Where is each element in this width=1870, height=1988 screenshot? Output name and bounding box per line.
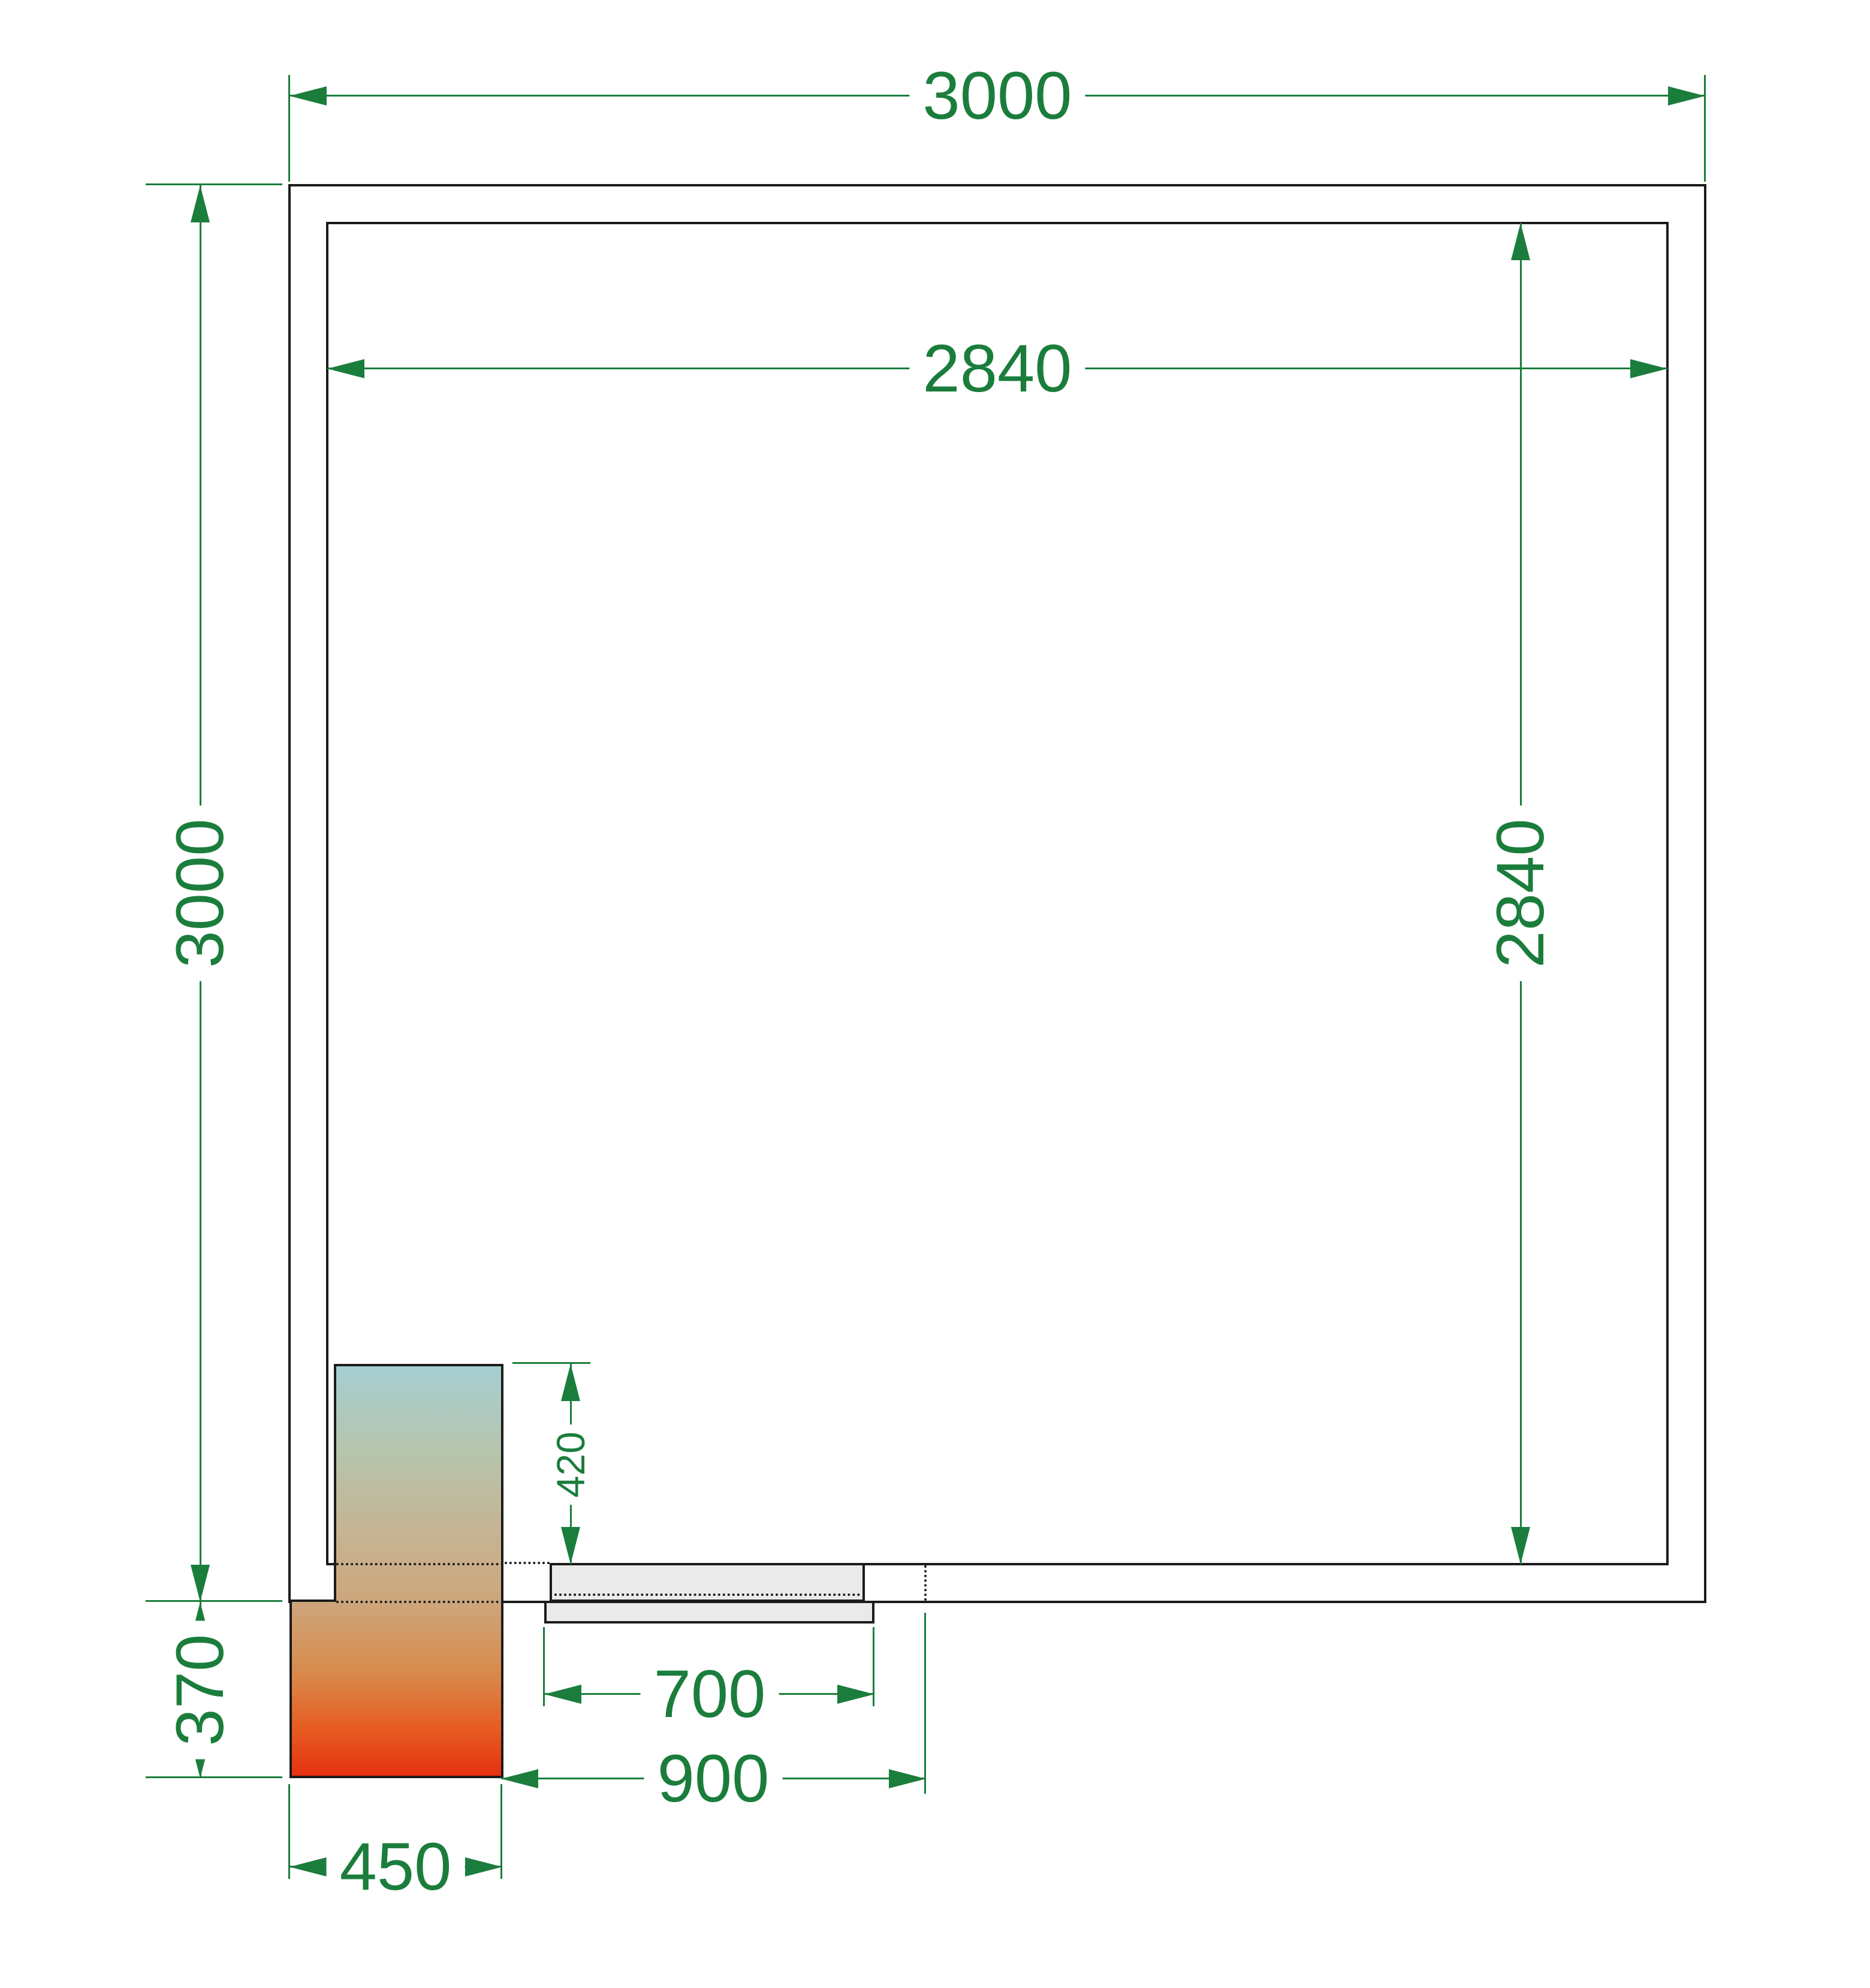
dim-900-label: 900 bbox=[644, 1742, 783, 1816]
wall-inner-top bbox=[326, 222, 1669, 224]
dim-420-label: 420 bbox=[548, 1424, 593, 1505]
wall-outer-top bbox=[289, 184, 1705, 186]
dim-3000-top-label: 3000 bbox=[909, 59, 1085, 133]
hidden-edge-opening-left bbox=[505, 1562, 550, 1564]
arrow-right-icon bbox=[465, 1857, 502, 1876]
dim-2840-top-label: 2840 bbox=[909, 332, 1085, 406]
arrow-left-icon bbox=[501, 1769, 538, 1788]
cooling-unit-inside-part bbox=[334, 1364, 503, 1602]
hidden-edge-inner-face-through-unit bbox=[336, 1563, 503, 1565]
wall-inner-left bbox=[326, 222, 328, 1565]
dim-3000-left-label: 3000 bbox=[163, 805, 237, 981]
cooling-unit-outside-part bbox=[289, 1602, 503, 1778]
arrow-up-icon bbox=[561, 1364, 580, 1401]
hidden-edge-outer-face-through-unit bbox=[336, 1601, 503, 1603]
arrow-right-icon bbox=[889, 1769, 926, 1788]
door-outer-lip bbox=[544, 1601, 874, 1623]
dim-370-label: 370 bbox=[163, 1621, 237, 1760]
arrow-up-icon bbox=[1511, 223, 1530, 260]
dim-3000-left-ext-bottom bbox=[146, 1600, 282, 1602]
door-leaf bbox=[550, 1563, 865, 1602]
arrow-up-icon bbox=[191, 185, 210, 222]
wall-inner-bottom-right bbox=[865, 1563, 1668, 1565]
arrow-down-icon bbox=[561, 1527, 580, 1564]
dim-370-ext-bottom bbox=[146, 1776, 282, 1778]
dim-450-label: 450 bbox=[327, 1830, 465, 1904]
arrow-down-icon bbox=[1511, 1527, 1530, 1564]
wall-outer-left bbox=[288, 184, 291, 1603]
arrow-down-icon bbox=[191, 1565, 210, 1602]
arrow-left-icon bbox=[289, 86, 327, 106]
wall-inner-right bbox=[1666, 222, 1669, 1565]
dim-700-label: 700 bbox=[641, 1657, 779, 1731]
arrow-right-icon bbox=[1630, 359, 1667, 378]
arrow-right-icon bbox=[837, 1685, 874, 1704]
cooling-unit-step-edge bbox=[289, 1600, 336, 1602]
dim-2840-right-label: 2840 bbox=[1483, 805, 1558, 981]
wall-outer-right bbox=[1704, 184, 1706, 1603]
hidden-edge-opening-right-jamb bbox=[924, 1565, 927, 1601]
arrow-left-icon bbox=[327, 359, 364, 378]
floor-plan-canvas: 3000 2840 3000 370 2840 420 700 900 450 bbox=[0, 0, 1870, 1988]
hidden-edge-through-door-leaf bbox=[554, 1594, 860, 1596]
dim-3000-left-ext-top bbox=[146, 183, 282, 185]
dim-900-ext-right bbox=[924, 1613, 926, 1794]
arrow-left-icon bbox=[289, 1857, 327, 1876]
arrow-right-icon bbox=[1668, 86, 1705, 106]
arrow-left-icon bbox=[544, 1685, 581, 1704]
